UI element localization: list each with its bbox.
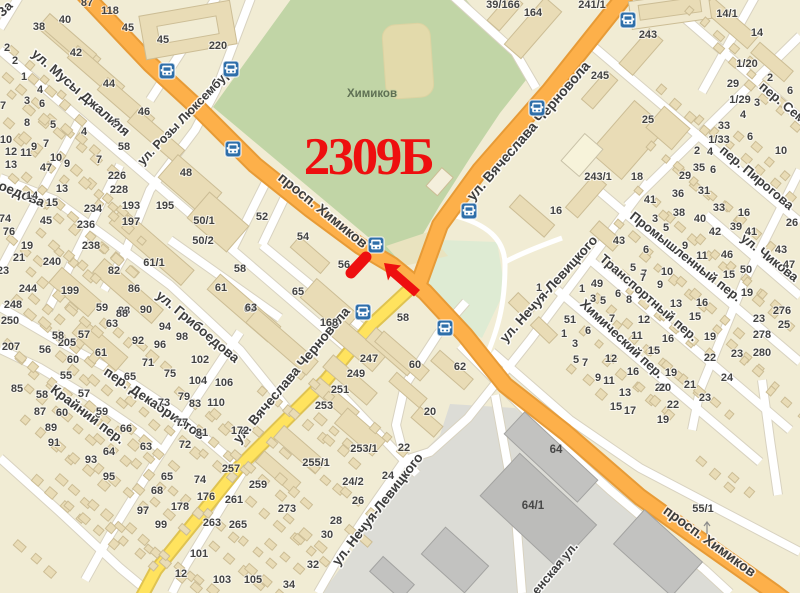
svg-text:26: 26: [786, 217, 798, 229]
svg-text:76: 76: [3, 226, 15, 238]
svg-text:14/1: 14/1: [716, 8, 737, 20]
svg-text:9: 9: [64, 158, 70, 170]
svg-text:24: 24: [382, 470, 395, 482]
svg-text:75: 75: [164, 368, 176, 380]
svg-text:15: 15: [610, 401, 622, 413]
svg-text:23: 23: [0, 265, 9, 277]
svg-text:38: 38: [673, 207, 685, 219]
svg-text:25: 25: [642, 114, 654, 126]
svg-text:58: 58: [234, 263, 246, 275]
svg-text:12: 12: [605, 353, 617, 365]
svg-text:1/29: 1/29: [729, 94, 750, 106]
svg-text:77: 77: [176, 417, 188, 429]
svg-text:106: 106: [215, 377, 233, 389]
svg-text:23: 23: [731, 348, 743, 360]
svg-text:36: 36: [672, 188, 684, 200]
svg-text:61: 61: [95, 347, 107, 359]
svg-text:15: 15: [689, 311, 701, 323]
svg-text:87: 87: [81, 0, 93, 9]
svg-text:91: 91: [48, 437, 60, 449]
svg-text:1/33: 1/33: [708, 134, 729, 146]
svg-text:220: 220: [209, 40, 227, 52]
svg-text:241/1: 241/1: [578, 0, 606, 11]
svg-text:22: 22: [704, 352, 716, 364]
svg-text:248: 248: [4, 299, 22, 311]
svg-text:176: 176: [197, 491, 215, 503]
svg-text:234: 234: [84, 203, 103, 215]
svg-text:118: 118: [101, 5, 119, 17]
svg-text:35: 35: [693, 162, 705, 174]
svg-text:64/1: 64/1: [522, 500, 545, 512]
svg-text:253/1: 253/1: [350, 443, 378, 455]
svg-text:3: 3: [590, 293, 596, 305]
svg-text:38: 38: [33, 21, 45, 33]
svg-text:39/166: 39/166: [486, 0, 520, 11]
svg-text:101: 101: [190, 548, 208, 560]
svg-text:7: 7: [640, 272, 646, 284]
svg-text:2309Б: 2309Б: [304, 128, 433, 186]
svg-text:9: 9: [682, 240, 688, 252]
svg-text:19: 19: [21, 240, 33, 252]
svg-text:4: 4: [707, 146, 714, 158]
svg-text:249: 249: [347, 368, 365, 380]
svg-text:34: 34: [283, 579, 296, 591]
svg-text:65: 65: [124, 371, 136, 383]
svg-text:28: 28: [330, 515, 342, 527]
svg-text:263: 263: [203, 517, 221, 529]
svg-text:6: 6: [615, 288, 621, 300]
svg-text:44: 44: [103, 78, 116, 90]
svg-text:21: 21: [13, 252, 25, 264]
svg-text:197: 197: [122, 216, 140, 228]
svg-text:6: 6: [787, 85, 793, 97]
svg-text:55: 55: [60, 370, 72, 382]
svg-text:41: 41: [745, 226, 757, 238]
svg-text:1: 1: [561, 328, 567, 340]
svg-text:40: 40: [59, 14, 71, 26]
svg-text:74: 74: [194, 474, 207, 486]
svg-text:49: 49: [591, 278, 603, 290]
svg-text:43: 43: [613, 235, 625, 247]
svg-text:66: 66: [120, 423, 132, 435]
svg-text:46: 46: [138, 106, 150, 118]
svg-text:10: 10: [0, 134, 12, 146]
svg-text:39: 39: [730, 221, 742, 233]
svg-text:6: 6: [585, 325, 591, 337]
svg-text:3: 3: [24, 95, 30, 107]
svg-text:2: 2: [767, 72, 773, 84]
svg-text:16: 16: [550, 205, 562, 217]
svg-text:57: 57: [78, 329, 90, 341]
svg-text:245: 245: [591, 70, 609, 82]
svg-text:1: 1: [536, 282, 542, 294]
svg-text:15: 15: [648, 345, 660, 357]
svg-text:58: 58: [36, 389, 48, 401]
svg-text:278: 278: [753, 329, 771, 341]
svg-text:15: 15: [723, 269, 735, 281]
svg-text:50: 50: [740, 264, 752, 276]
svg-text:20: 20: [659, 382, 671, 394]
svg-text:280: 280: [753, 347, 771, 359]
svg-text:88: 88: [116, 308, 128, 320]
svg-text:50/1: 50/1: [193, 215, 214, 227]
svg-text:22: 22: [667, 399, 679, 411]
svg-text:23: 23: [699, 392, 711, 404]
svg-text:62: 62: [454, 361, 466, 373]
svg-text:59: 59: [96, 302, 108, 314]
svg-text:207: 207: [2, 341, 20, 353]
svg-text:47: 47: [783, 259, 795, 271]
svg-text:4: 4: [81, 126, 88, 138]
svg-text:85: 85: [11, 383, 23, 395]
svg-text:110: 110: [207, 397, 225, 409]
svg-text:7: 7: [609, 313, 615, 325]
svg-text:6: 6: [643, 244, 649, 256]
svg-text:19: 19: [741, 287, 753, 299]
svg-text:14: 14: [751, 27, 764, 39]
svg-text:12: 12: [175, 568, 187, 580]
svg-text:58: 58: [52, 330, 64, 342]
svg-text:2: 2: [12, 55, 18, 67]
svg-text:29: 29: [727, 78, 739, 90]
svg-text:90: 90: [140, 304, 152, 316]
svg-text:45: 45: [40, 215, 52, 227]
svg-text:61: 61: [215, 282, 227, 294]
svg-text:73: 73: [158, 397, 170, 409]
svg-text:7: 7: [0, 100, 6, 112]
svg-text:68: 68: [151, 485, 163, 497]
svg-text:3: 3: [754, 97, 760, 109]
svg-text:51: 51: [564, 314, 576, 326]
svg-text:193: 193: [122, 200, 140, 212]
svg-text:104: 104: [189, 375, 208, 387]
svg-text:244: 244: [19, 283, 38, 295]
svg-text:42: 42: [709, 226, 721, 238]
svg-text:168: 168: [320, 317, 338, 329]
svg-text:16: 16: [662, 333, 674, 345]
svg-text:257: 257: [222, 463, 240, 475]
svg-text:24: 24: [721, 372, 734, 384]
svg-text:13: 13: [56, 183, 68, 195]
svg-text:226: 226: [108, 170, 126, 182]
svg-text:247: 247: [360, 353, 378, 365]
svg-text:41: 41: [644, 194, 656, 206]
svg-text:63: 63: [245, 302, 257, 314]
svg-text:195: 195: [156, 200, 174, 212]
svg-text:164: 164: [524, 7, 543, 19]
svg-text:5: 5: [600, 295, 606, 307]
svg-text:59: 59: [96, 406, 108, 418]
svg-text:3: 3: [652, 213, 658, 225]
svg-text:240: 240: [43, 256, 61, 268]
svg-text:2: 2: [694, 145, 700, 157]
svg-text:5: 5: [114, 117, 120, 129]
svg-text:94: 94: [159, 321, 172, 333]
svg-text:199: 199: [61, 285, 79, 297]
svg-text:251: 251: [331, 384, 349, 396]
svg-text:19: 19: [704, 331, 716, 343]
svg-text:4: 4: [740, 109, 747, 121]
svg-text:55/1: 55/1: [692, 503, 713, 515]
svg-text:11: 11: [631, 330, 643, 342]
svg-text:228: 228: [110, 184, 128, 196]
svg-text:178: 178: [171, 501, 189, 513]
svg-text:93: 93: [85, 454, 97, 466]
svg-text:23: 23: [753, 313, 765, 325]
svg-text:9: 9: [657, 279, 663, 291]
svg-text:18: 18: [631, 171, 643, 183]
svg-text:58: 58: [118, 141, 130, 153]
svg-text:95: 95: [103, 471, 115, 483]
svg-text:6: 6: [747, 131, 753, 143]
svg-text:4: 4: [37, 84, 44, 96]
svg-text:54: 54: [297, 231, 310, 243]
svg-text:12: 12: [5, 146, 17, 158]
svg-text:46: 46: [721, 249, 733, 261]
svg-text:63: 63: [140, 441, 152, 453]
svg-text:5: 5: [50, 119, 56, 131]
svg-text:13: 13: [619, 387, 631, 399]
svg-text:12: 12: [638, 314, 650, 326]
svg-text:5: 5: [663, 222, 669, 234]
svg-text:13: 13: [5, 159, 17, 171]
svg-text:11: 11: [696, 250, 708, 262]
svg-text:21: 21: [684, 379, 696, 391]
svg-text:87: 87: [34, 406, 46, 418]
svg-text:52: 52: [256, 211, 268, 223]
svg-text:3: 3: [572, 338, 578, 350]
svg-text:259: 259: [249, 479, 267, 491]
svg-text:5: 5: [573, 354, 579, 366]
svg-text:43: 43: [775, 244, 787, 256]
svg-text:60: 60: [67, 354, 79, 366]
svg-text:57: 57: [78, 388, 90, 400]
svg-text:11: 11: [603, 375, 615, 387]
svg-text:7: 7: [582, 357, 588, 369]
svg-text:50/2: 50/2: [192, 235, 213, 247]
svg-text:6: 6: [39, 98, 45, 110]
svg-text:255/1: 255/1: [302, 457, 330, 469]
svg-text:24/2: 24/2: [342, 476, 363, 488]
svg-text:65: 65: [292, 286, 304, 298]
svg-text:276: 276: [773, 305, 791, 317]
svg-text:72: 72: [179, 439, 191, 451]
svg-text:16: 16: [738, 207, 750, 219]
svg-text:99: 99: [155, 519, 167, 531]
svg-text:243: 243: [639, 29, 657, 41]
svg-text:7: 7: [43, 138, 49, 150]
svg-text:25: 25: [778, 319, 790, 331]
svg-text:2: 2: [4, 42, 10, 54]
svg-text:20: 20: [424, 406, 436, 418]
svg-text:13: 13: [670, 298, 682, 310]
svg-text:33: 33: [713, 202, 725, 214]
svg-text:253: 253: [315, 400, 333, 412]
svg-text:261: 261: [225, 494, 243, 506]
svg-text:45: 45: [122, 22, 134, 34]
svg-text:56: 56: [39, 344, 51, 356]
svg-text:64: 64: [103, 446, 116, 458]
svg-text:30: 30: [321, 529, 333, 541]
svg-text:60: 60: [409, 359, 421, 371]
svg-text:9: 9: [595, 372, 601, 384]
svg-text:60: 60: [56, 407, 68, 419]
svg-text:81: 81: [196, 427, 208, 439]
svg-text:83: 83: [189, 398, 201, 410]
svg-text:10: 10: [661, 266, 673, 278]
svg-text:40: 40: [694, 213, 706, 225]
svg-text:89: 89: [45, 422, 57, 434]
svg-text:58: 58: [397, 312, 409, 324]
svg-text:1: 1: [21, 71, 27, 83]
svg-text:5: 5: [630, 262, 636, 274]
svg-text:32: 32: [307, 559, 319, 571]
svg-text:92: 92: [132, 335, 144, 347]
svg-text:236: 236: [77, 219, 95, 231]
svg-text:48: 48: [180, 167, 192, 179]
svg-text:33: 33: [718, 120, 730, 132]
svg-text:7: 7: [96, 154, 102, 166]
svg-text:16: 16: [696, 297, 708, 309]
svg-text:26: 26: [352, 495, 364, 507]
svg-text:8: 8: [626, 294, 632, 306]
svg-text:6: 6: [710, 164, 716, 176]
svg-text:64: 64: [550, 444, 563, 456]
svg-text:97: 97: [137, 505, 149, 517]
svg-text:86: 86: [128, 283, 140, 295]
svg-text:238: 238: [82, 240, 100, 252]
svg-text:10: 10: [50, 152, 62, 164]
svg-text:10: 10: [775, 145, 787, 157]
svg-text:65: 65: [161, 471, 173, 483]
svg-text:243/1: 243/1: [584, 171, 612, 183]
svg-text:96: 96: [154, 339, 166, 351]
svg-text:42: 42: [70, 47, 82, 59]
svg-text:Химиков: Химиков: [347, 88, 397, 100]
svg-text:31: 31: [698, 185, 710, 197]
svg-text:273: 273: [278, 503, 296, 515]
svg-text:250: 250: [1, 315, 19, 327]
svg-text:1/20: 1/20: [736, 58, 757, 70]
svg-text:98: 98: [176, 331, 188, 343]
svg-text:172: 172: [231, 425, 249, 437]
svg-text:19: 19: [665, 367, 677, 379]
svg-text:19: 19: [657, 414, 669, 426]
svg-text:11: 11: [20, 147, 32, 159]
svg-text:103: 103: [213, 574, 231, 586]
svg-text:17: 17: [624, 405, 636, 417]
svg-text:45: 45: [157, 34, 169, 46]
svg-text:102: 102: [191, 354, 209, 366]
svg-text:1: 1: [579, 283, 585, 295]
svg-text:61/1: 61/1: [143, 257, 164, 269]
svg-text:22: 22: [398, 442, 410, 454]
svg-text:82: 82: [108, 265, 120, 277]
svg-text:16: 16: [627, 366, 639, 378]
svg-text:14: 14: [26, 190, 39, 202]
svg-text:105: 105: [244, 574, 262, 586]
svg-text:15: 15: [46, 197, 58, 209]
svg-text:8: 8: [24, 117, 30, 129]
svg-text:9: 9: [31, 141, 37, 153]
svg-text:29: 29: [679, 170, 691, 182]
svg-text:74: 74: [0, 213, 12, 225]
svg-text:71: 71: [142, 357, 154, 369]
svg-text:265: 265: [229, 519, 247, 531]
